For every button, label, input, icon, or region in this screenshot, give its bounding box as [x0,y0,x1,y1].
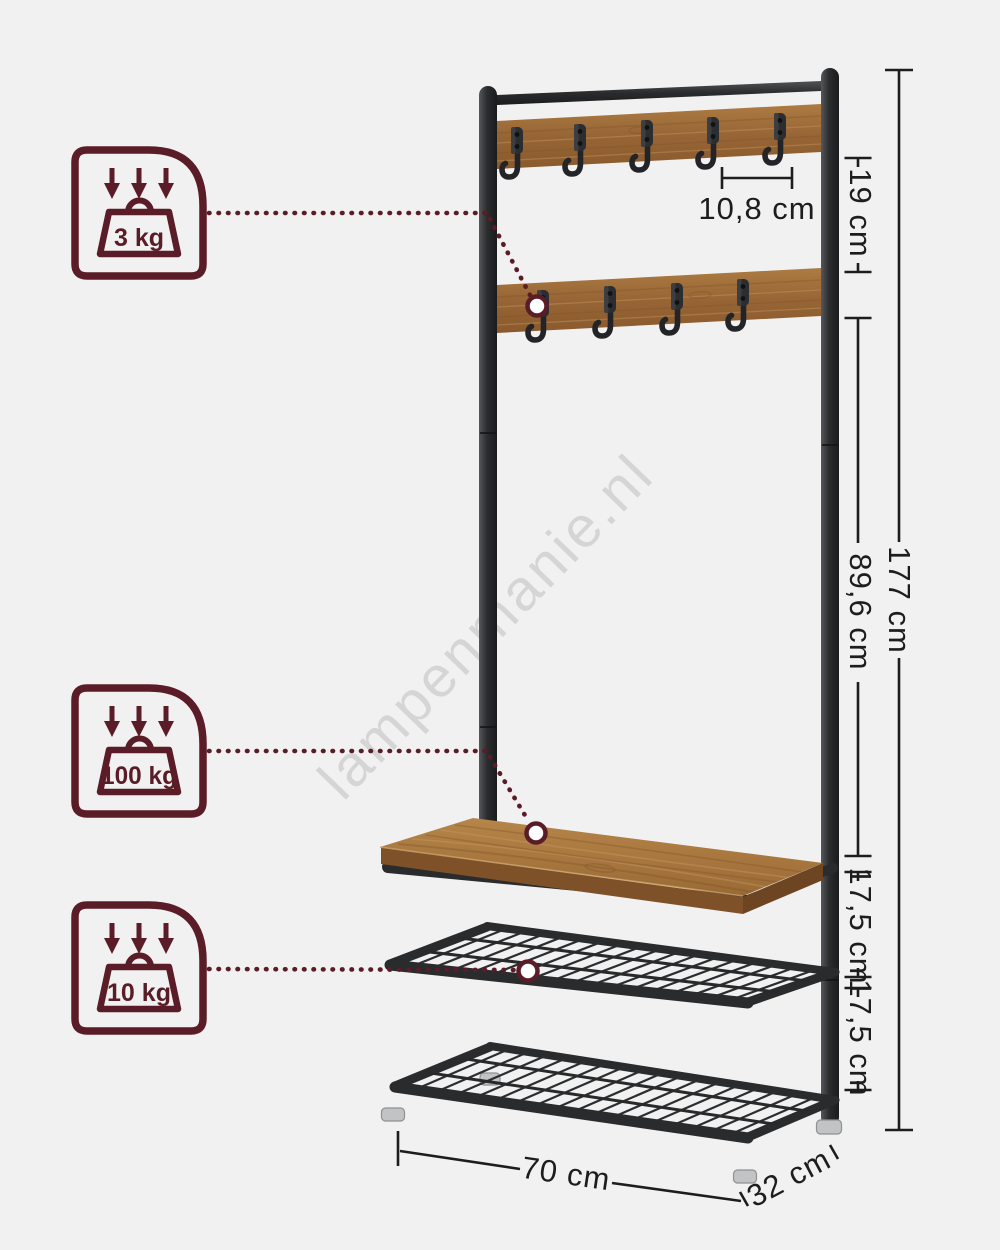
dimension-label-hook-spacing: 10,8 cm [698,191,815,226]
right-post-foot [817,1120,842,1134]
dimension-board-gap: 19 cm [843,158,878,272]
dimension-label-board-gap: 19 cm [843,168,878,257]
left-post [479,86,497,852]
dimension-bench-to-shelf: 17,5 cm [843,867,878,984]
badge-hook-capacity-label: 3 kg [114,224,164,252]
dimension-label-shelf-to-shelf: 17,5 cm [843,979,878,1096]
callout-marker [519,962,538,981]
front-left-foot [382,1108,405,1121]
dimension-label-bench-to-shelf: 17,5 cm [843,867,878,984]
badge-bench-capacity-label: 100 kg [101,762,177,790]
badge-shelf-capacity-label: 10 kg [107,979,171,1007]
dimension-shelf-to-shelf: 17,5 cm [843,979,878,1096]
callout-marker [528,297,547,316]
callout-marker [527,824,546,843]
diagram-canvas: lampenmanie.nl [0,0,1000,1250]
dimension-label-total-height: 177 cm [882,546,917,654]
product-dimension-diagram: lampenmanie.nl [0,0,1000,1250]
dimension-label-board-to-bench: 89,6 cm [843,553,878,670]
